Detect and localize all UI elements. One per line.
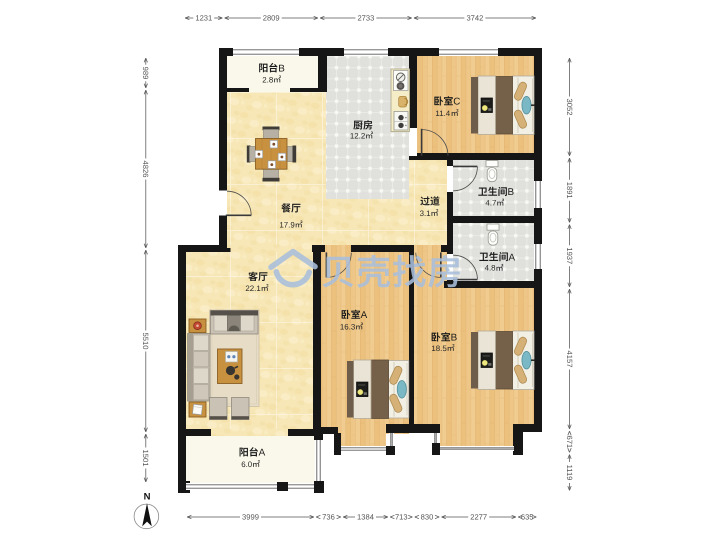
svg-text:A: A (361, 310, 368, 321)
svg-text:635: 635 (521, 513, 534, 522)
svg-text:989: 989 (141, 67, 150, 80)
svg-text:3052: 3052 (565, 99, 574, 116)
svg-text:B: B (278, 63, 285, 74)
svg-text:713: 713 (395, 513, 408, 522)
svg-text:736: 736 (322, 513, 335, 522)
svg-text:11.4: 11.4 (435, 109, 450, 118)
svg-text:671: 671 (565, 435, 574, 448)
svg-text:3999: 3999 (242, 513, 259, 522)
svg-text:1119: 1119 (565, 465, 574, 481)
svg-text:1501: 1501 (141, 450, 150, 467)
svg-text:N: N (144, 492, 151, 503)
svg-text:1937: 1937 (565, 247, 574, 264)
svg-text:B: B (451, 333, 458, 344)
svg-text:16.3: 16.3 (340, 322, 356, 331)
svg-text:5510: 5510 (141, 333, 150, 350)
svg-text:2.8: 2.8 (262, 75, 274, 84)
svg-text:C: C (453, 97, 460, 108)
svg-text:6.0: 6.0 (241, 460, 253, 469)
svg-text:2277: 2277 (470, 513, 487, 522)
svg-text:B: B (508, 187, 515, 198)
svg-text:A: A (509, 252, 516, 263)
svg-text:830: 830 (421, 513, 434, 522)
svg-text:2733: 2733 (357, 14, 374, 23)
svg-text:17.9: 17.9 (279, 220, 295, 229)
svg-text:4157: 4157 (565, 351, 574, 368)
svg-text:4.7: 4.7 (485, 199, 496, 208)
svg-text:12.2: 12.2 (350, 131, 365, 140)
svg-text:4.8: 4.8 (485, 264, 497, 273)
svg-text:3.1: 3.1 (420, 209, 431, 218)
svg-text:1891: 1891 (565, 182, 574, 199)
svg-text:A: A (259, 448, 266, 459)
svg-text:18.5: 18.5 (431, 344, 447, 353)
svg-text:22.1: 22.1 (245, 284, 260, 293)
svg-text:2809: 2809 (263, 14, 280, 23)
svg-text:1231: 1231 (195, 14, 212, 23)
svg-text:3742: 3742 (466, 14, 483, 23)
svg-text:1384: 1384 (357, 513, 374, 522)
svg-text:4826: 4826 (141, 161, 150, 178)
